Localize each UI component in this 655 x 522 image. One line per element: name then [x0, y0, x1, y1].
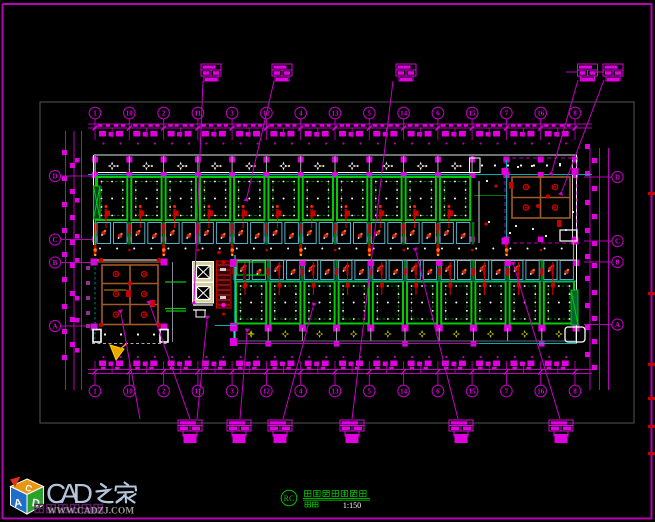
svg-text:A: A	[13, 497, 23, 510]
svg-text:2: 2	[162, 110, 166, 118]
svg-text:B: B	[615, 259, 620, 267]
svg-text:A: A	[52, 323, 57, 331]
svg-text:16: 16	[537, 388, 545, 396]
svg-text:1:150: 1:150	[343, 501, 361, 510]
svg-text:11: 11	[195, 110, 202, 118]
svg-text:WWW.CADZJ.COM: WWW.CADZJ.COM	[47, 507, 134, 517]
svg-text:13: 13	[332, 110, 340, 118]
svg-text:7: 7	[505, 110, 509, 118]
svg-text:1: 1	[93, 388, 97, 396]
svg-text:6: 6	[436, 388, 440, 396]
svg-text:11: 11	[195, 388, 202, 396]
svg-text:A: A	[615, 321, 620, 329]
svg-text:12: 12	[263, 388, 271, 396]
svg-text:8: 8	[573, 388, 577, 396]
svg-text:5: 5	[368, 110, 372, 118]
svg-text:C: C	[615, 238, 620, 246]
svg-text:7: 7	[505, 388, 509, 396]
svg-text:B: B	[53, 259, 58, 267]
svg-text:1: 1	[93, 110, 97, 118]
svg-text:4: 4	[299, 388, 303, 396]
svg-text:RC: RC	[284, 494, 295, 503]
svg-text:5: 5	[368, 388, 372, 396]
svg-text:4: 4	[299, 110, 303, 118]
svg-text:D: D	[615, 174, 620, 182]
svg-text:3: 3	[230, 388, 234, 396]
svg-text:14: 14	[400, 110, 408, 118]
svg-text:14: 14	[400, 388, 408, 396]
svg-text:2: 2	[162, 388, 166, 396]
svg-text:16: 16	[537, 110, 545, 118]
svg-text:13: 13	[332, 388, 340, 396]
svg-text:D: D	[52, 173, 57, 181]
svg-text:6: 6	[436, 110, 440, 118]
svg-text:15: 15	[469, 388, 477, 396]
svg-text:10: 10	[126, 110, 134, 118]
svg-text:3: 3	[230, 110, 234, 118]
svg-text:C: C	[52, 236, 57, 244]
svg-text:10: 10	[126, 388, 134, 396]
svg-text:8: 8	[573, 110, 577, 118]
svg-text:15: 15	[469, 110, 477, 118]
